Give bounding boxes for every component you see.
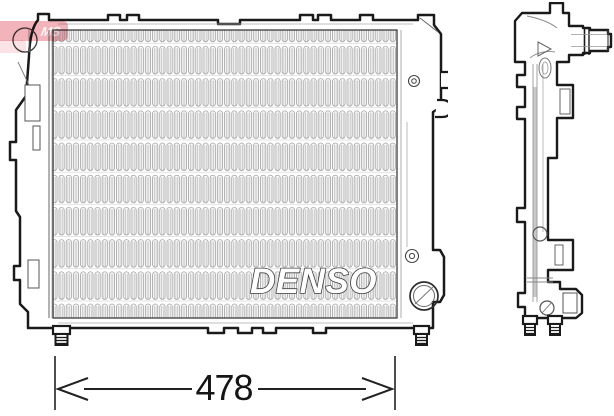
arrowhead-right [362, 378, 392, 400]
watermark-sub-block [0, 40, 26, 53]
mounting-hook-lower [435, 100, 448, 117]
left-bottom-leg [53, 326, 70, 345]
watermark-text: MS [39, 24, 61, 39]
denso-logo: DENSO [246, 258, 386, 306]
side-left-leg [523, 316, 537, 335]
arrowhead-left [58, 378, 88, 400]
mounting-hook-upper [441, 72, 448, 88]
watermark-badge: MS [0, 21, 68, 41]
radiator-side-profile-view [505, 2, 614, 354]
side-right-leg [548, 316, 562, 335]
side-body-outline [515, 3, 611, 318]
radiator-technical-drawing: DENSO MS 478 [0, 0, 614, 416]
right-bottom-leg [414, 326, 429, 345]
dimension-label: 478 [192, 369, 256, 407]
denso-logo-text: DENSO [250, 262, 377, 301]
